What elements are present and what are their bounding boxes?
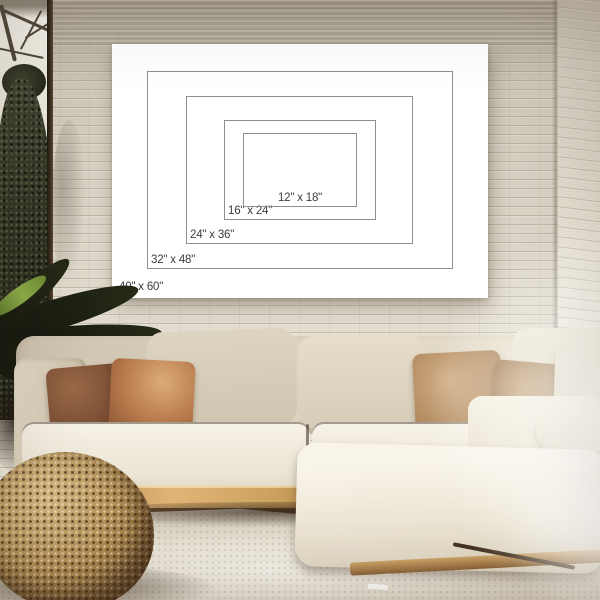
photo-vignette [0,0,600,600]
living-room-scene: 32" x 48" 24" x 36" 16" x 24" 12" x 18" … [0,0,600,600]
